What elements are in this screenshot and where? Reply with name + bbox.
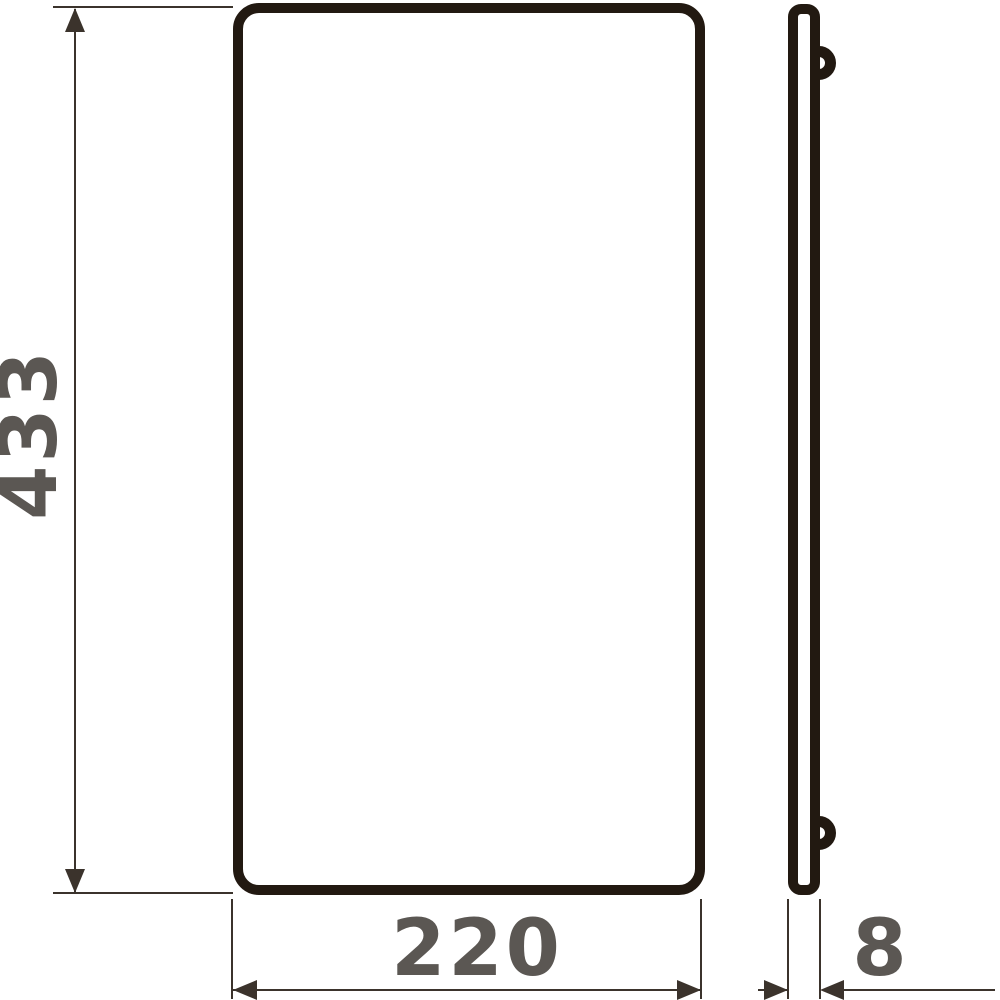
height-arrow-down-icon — [65, 869, 85, 893]
width-dimension-label: 220 — [391, 910, 563, 988]
technical-drawing-canvas: 433 220 8 — [0, 0, 1000, 1000]
width-arrow-left-icon — [233, 980, 257, 1000]
height-dimension-label: 433 — [0, 348, 69, 520]
thickness-arrow-right-icon — [764, 980, 788, 1000]
side-view-outline — [788, 4, 820, 895]
height-arrow-up-icon — [65, 8, 85, 32]
thickness-dimension-label: 8 — [852, 910, 909, 988]
thickness-arrow-left-icon — [820, 980, 844, 1000]
front-view-outline — [233, 3, 705, 895]
width-arrow-right-icon — [677, 980, 701, 1000]
